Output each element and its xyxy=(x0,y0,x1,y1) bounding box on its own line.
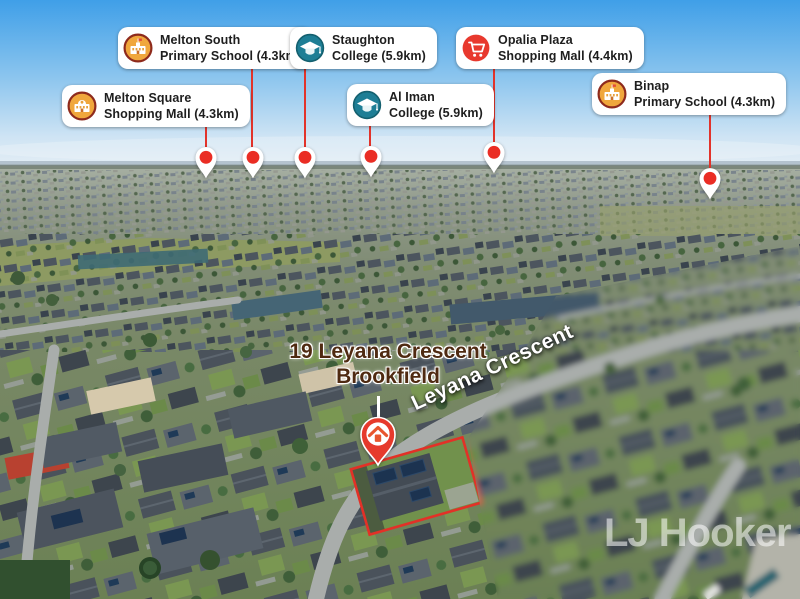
callout-line1: Melton Square xyxy=(104,90,239,106)
mall-icon xyxy=(67,91,97,121)
callout-line1: Melton South xyxy=(160,32,301,48)
callout-line2: Primary School (4.3km) xyxy=(634,94,775,110)
callout-staughton-college: Staughton College (5.9km) xyxy=(290,27,437,69)
callout-binap-primary-school: Binap Primary School (4.3km) xyxy=(592,73,786,115)
callout-line2: Shopping Mall (4.4km) xyxy=(498,48,633,64)
shopping-cart-icon xyxy=(461,33,491,63)
callout-line2: College (5.9km) xyxy=(332,48,426,64)
leader-line-staughton xyxy=(304,66,306,147)
map-pin-opalia xyxy=(482,140,506,174)
leader-line-melton-square xyxy=(205,124,207,147)
school-icon xyxy=(123,33,153,63)
callout-line1: Opalia Plaza xyxy=(498,32,633,48)
map-pin-melton-square xyxy=(194,145,218,179)
callout-line1: Al Iman xyxy=(389,89,483,105)
callout-line2: Shopping Mall (4.3km) xyxy=(104,106,239,122)
college-icon xyxy=(352,90,382,120)
callout-melton-south-primary-school: Melton South Primary School (4.3km) xyxy=(118,27,312,69)
callout-opalia-plaza-shopping-mall: Opalia Plaza Shopping Mall (4.4km) xyxy=(456,27,644,69)
callout-line1: Staughton xyxy=(332,32,426,48)
callout-line2: Primary School (4.3km) xyxy=(160,48,301,64)
home-pin-icon xyxy=(358,415,398,467)
leader-line-melton-south xyxy=(251,66,253,147)
aerial-listing-photo: Melton South Primary School (4.3km) Stau… xyxy=(0,0,800,599)
agency-watermark: LJ Hooker xyxy=(604,511,791,556)
map-pin-al-iman xyxy=(359,144,383,178)
callout-line1: Binap xyxy=(634,78,775,94)
map-pin-melton-south xyxy=(241,145,265,179)
map-pin-staughton xyxy=(293,145,317,179)
leader-line-binap xyxy=(709,112,711,168)
callout-melton-square-shopping-mall: Melton Square Shopping Mall (4.3km) xyxy=(62,85,250,127)
leader-line-al-iman xyxy=(369,123,371,146)
school-icon xyxy=(597,79,627,109)
callout-line2: College (5.9km) xyxy=(389,105,483,121)
callout-al-iman-college: Al Iman College (5.9km) xyxy=(347,84,494,126)
map-pin-binap xyxy=(698,166,722,200)
college-icon xyxy=(295,33,325,63)
